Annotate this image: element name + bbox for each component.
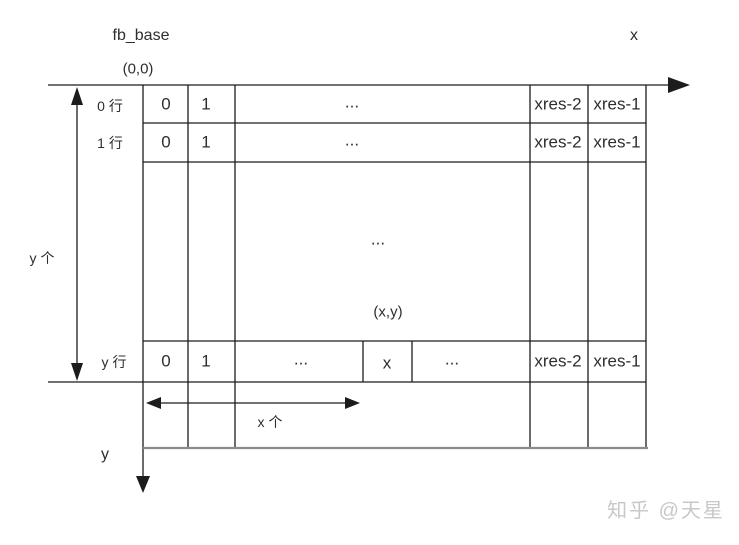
origin-label: (0,0) bbox=[123, 62, 154, 77]
rowy-label: y 行 bbox=[102, 355, 127, 369]
cell-rowy-1: 1 bbox=[201, 353, 210, 370]
x-count-arrowhead-right bbox=[345, 397, 360, 409]
watermark: 知乎 @天星 bbox=[607, 501, 725, 521]
cell-row0-ellipsis: ... bbox=[345, 94, 359, 111]
y-axis-label: y bbox=[101, 447, 109, 463]
y-axis-arrowhead bbox=[136, 476, 150, 493]
row1-label: 1 行 bbox=[97, 136, 123, 150]
cell-rowy-ellipsis-left: ... bbox=[294, 351, 308, 368]
cell-middle-coordinate: (x,y) bbox=[373, 305, 402, 320]
y-count-label: y 个 bbox=[30, 251, 55, 265]
cell-row1-xres1: xres-1 bbox=[593, 134, 640, 151]
cell-row1-ellipsis: ... bbox=[345, 132, 359, 149]
cell-row0-1: 1 bbox=[201, 96, 210, 113]
cell-row1-1: 1 bbox=[201, 134, 210, 151]
cell-row1-0: 0 bbox=[161, 134, 170, 151]
x-axis-label: x bbox=[630, 28, 638, 44]
x-count-arrowhead-left bbox=[146, 397, 161, 409]
cell-rowy-ellipsis-right: ... bbox=[445, 351, 459, 368]
cell-row0-xres1: xres-1 bbox=[593, 96, 640, 113]
y-count-arrowhead-up bbox=[71, 87, 83, 105]
cell-rowy-xres1: xres-1 bbox=[593, 353, 640, 370]
framebuffer-layout-diagram: fb_base (0,0) x y 0 行 1 行 y 行 y 个 x 个 0 … bbox=[0, 0, 739, 545]
y-count-arrowhead-down bbox=[71, 363, 83, 381]
x-count-label: x 个 bbox=[258, 415, 283, 429]
cell-rowy-x: x bbox=[383, 355, 392, 372]
cell-row0-0: 0 bbox=[161, 96, 170, 113]
fb-base-label: fb_base bbox=[113, 28, 170, 44]
cell-rowy-0: 0 bbox=[161, 353, 170, 370]
cell-row1-xres2: xres-2 bbox=[534, 134, 581, 151]
x-axis-arrowhead bbox=[668, 77, 690, 93]
cell-middle-ellipsis: ... bbox=[371, 231, 385, 248]
row0-label: 0 行 bbox=[97, 99, 123, 113]
diagram-grid bbox=[0, 0, 739, 545]
cell-rowy-xres2: xres-2 bbox=[534, 353, 581, 370]
cell-row0-xres2: xres-2 bbox=[534, 96, 581, 113]
